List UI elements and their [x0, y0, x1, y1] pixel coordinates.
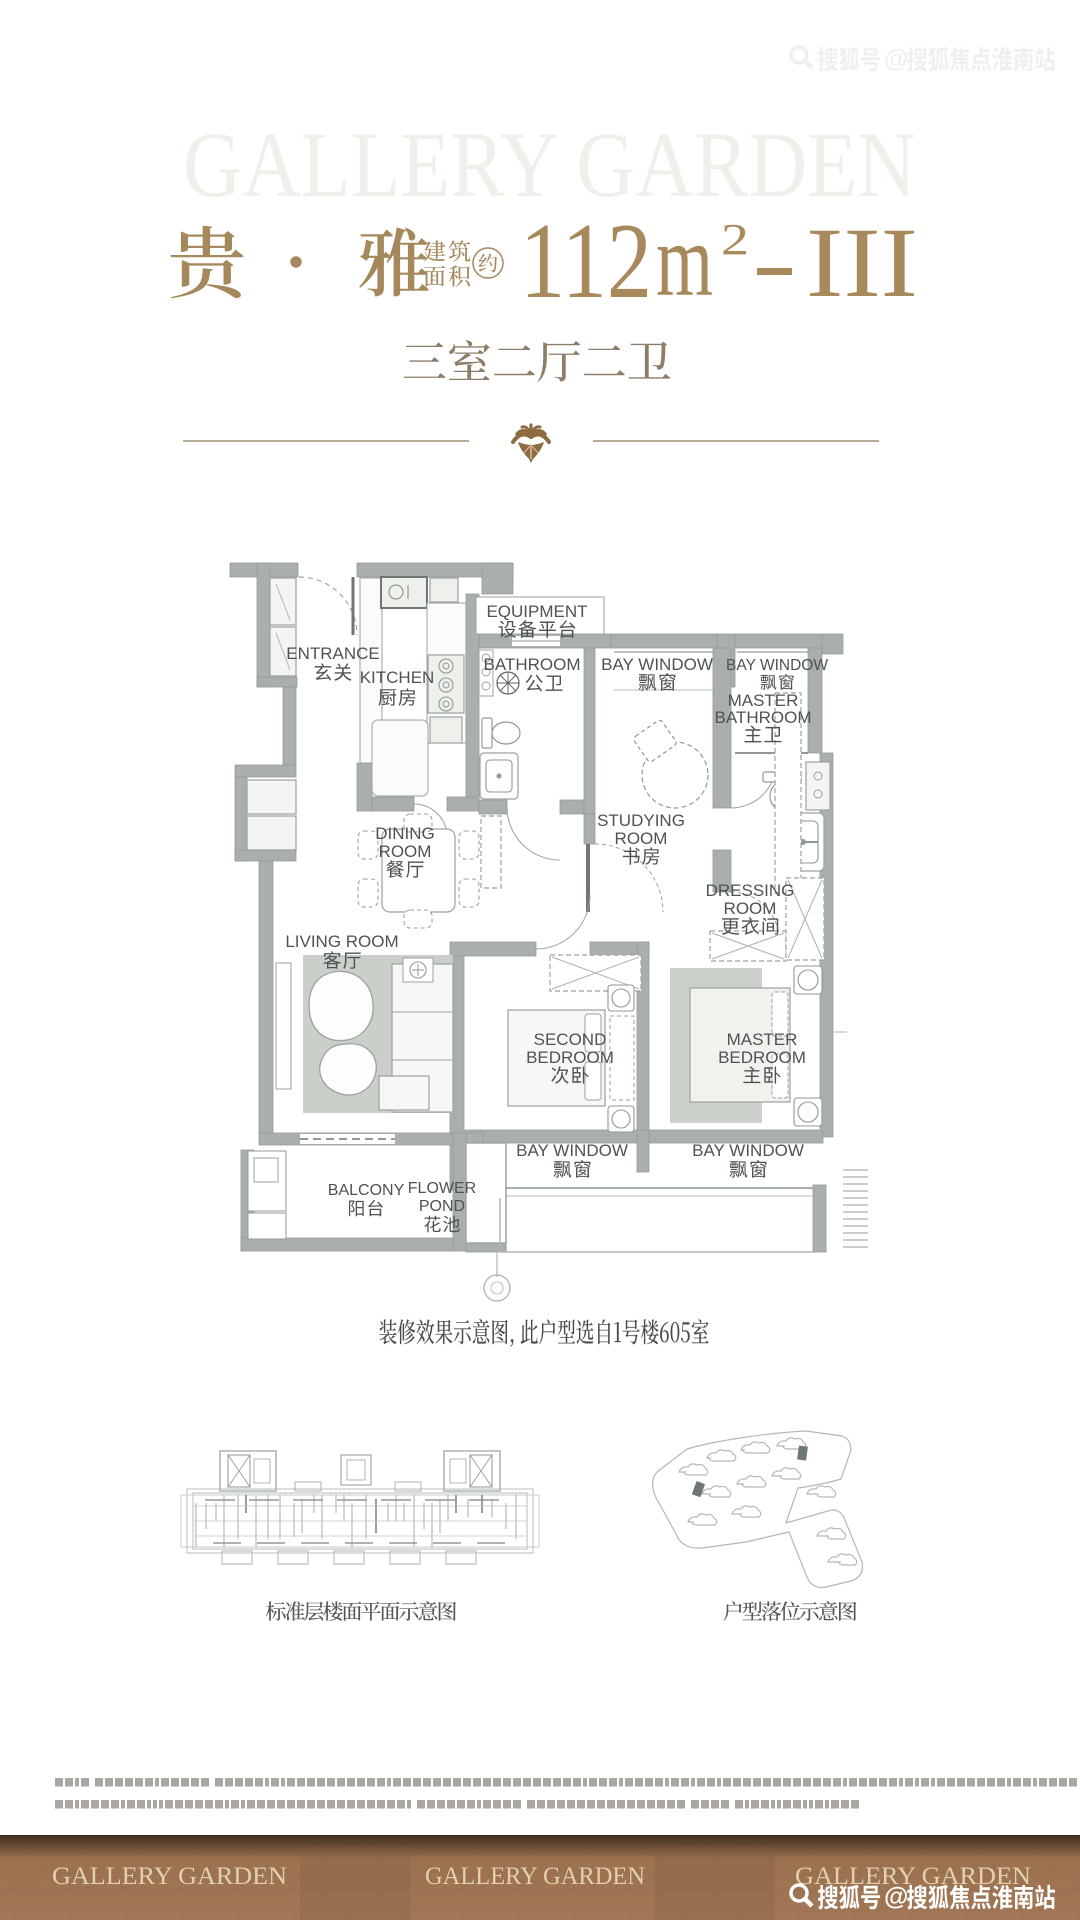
- svg-text:DINING: DINING: [375, 824, 435, 843]
- svg-text:BEDROOM: BEDROOM: [526, 1048, 614, 1067]
- svg-text:@: @: [884, 1883, 908, 1911]
- svg-text:LIVING ROOM: LIVING ROOM: [285, 932, 398, 951]
- svg-text:BAY WINDOW: BAY WINDOW: [516, 1141, 628, 1160]
- svg-text:POND: POND: [419, 1198, 465, 1215]
- svg-text:@: @: [884, 45, 908, 73]
- svg-text:ROOM: ROOM: [615, 829, 668, 848]
- svg-text:EQUIPMENT: EQUIPMENT: [486, 602, 587, 621]
- svg-text:DRESSING: DRESSING: [706, 881, 795, 900]
- svg-text:MASTER: MASTER: [727, 1030, 798, 1049]
- svg-text:BEDROOM: BEDROOM: [718, 1048, 806, 1067]
- svg-text:BALCONY: BALCONY: [328, 1182, 405, 1199]
- svg-text:III: III: [806, 207, 918, 318]
- svg-text:BATHROOM: BATHROOM: [484, 655, 581, 674]
- svg-text:GALLERY GARDEN: GALLERY GARDEN: [425, 1863, 645, 1890]
- svg-text:ROOM: ROOM: [379, 842, 432, 861]
- svg-text:BAY WINDOW: BAY WINDOW: [601, 655, 713, 674]
- svg-text:FLOWER: FLOWER: [408, 1180, 476, 1197]
- svg-text:m: m: [656, 203, 713, 318]
- svg-text:2: 2: [721, 215, 749, 264]
- svg-text:STUDYING: STUDYING: [597, 811, 685, 830]
- svg-text:ENTRANCE: ENTRANCE: [286, 644, 380, 663]
- svg-text:ROOM: ROOM: [724, 899, 777, 918]
- svg-text:BATHROOM: BATHROOM: [715, 708, 812, 727]
- svg-text:112: 112: [520, 202, 652, 321]
- svg-text:GALLERY GARDEN: GALLERY GARDEN: [52, 1863, 287, 1890]
- svg-text:SECOND: SECOND: [534, 1030, 607, 1049]
- svg-text:BAY WINDOW: BAY WINDOW: [726, 657, 828, 674]
- svg-text:KITCHEN: KITCHEN: [360, 668, 435, 687]
- svg-text:BAY WINDOW: BAY WINDOW: [692, 1141, 804, 1160]
